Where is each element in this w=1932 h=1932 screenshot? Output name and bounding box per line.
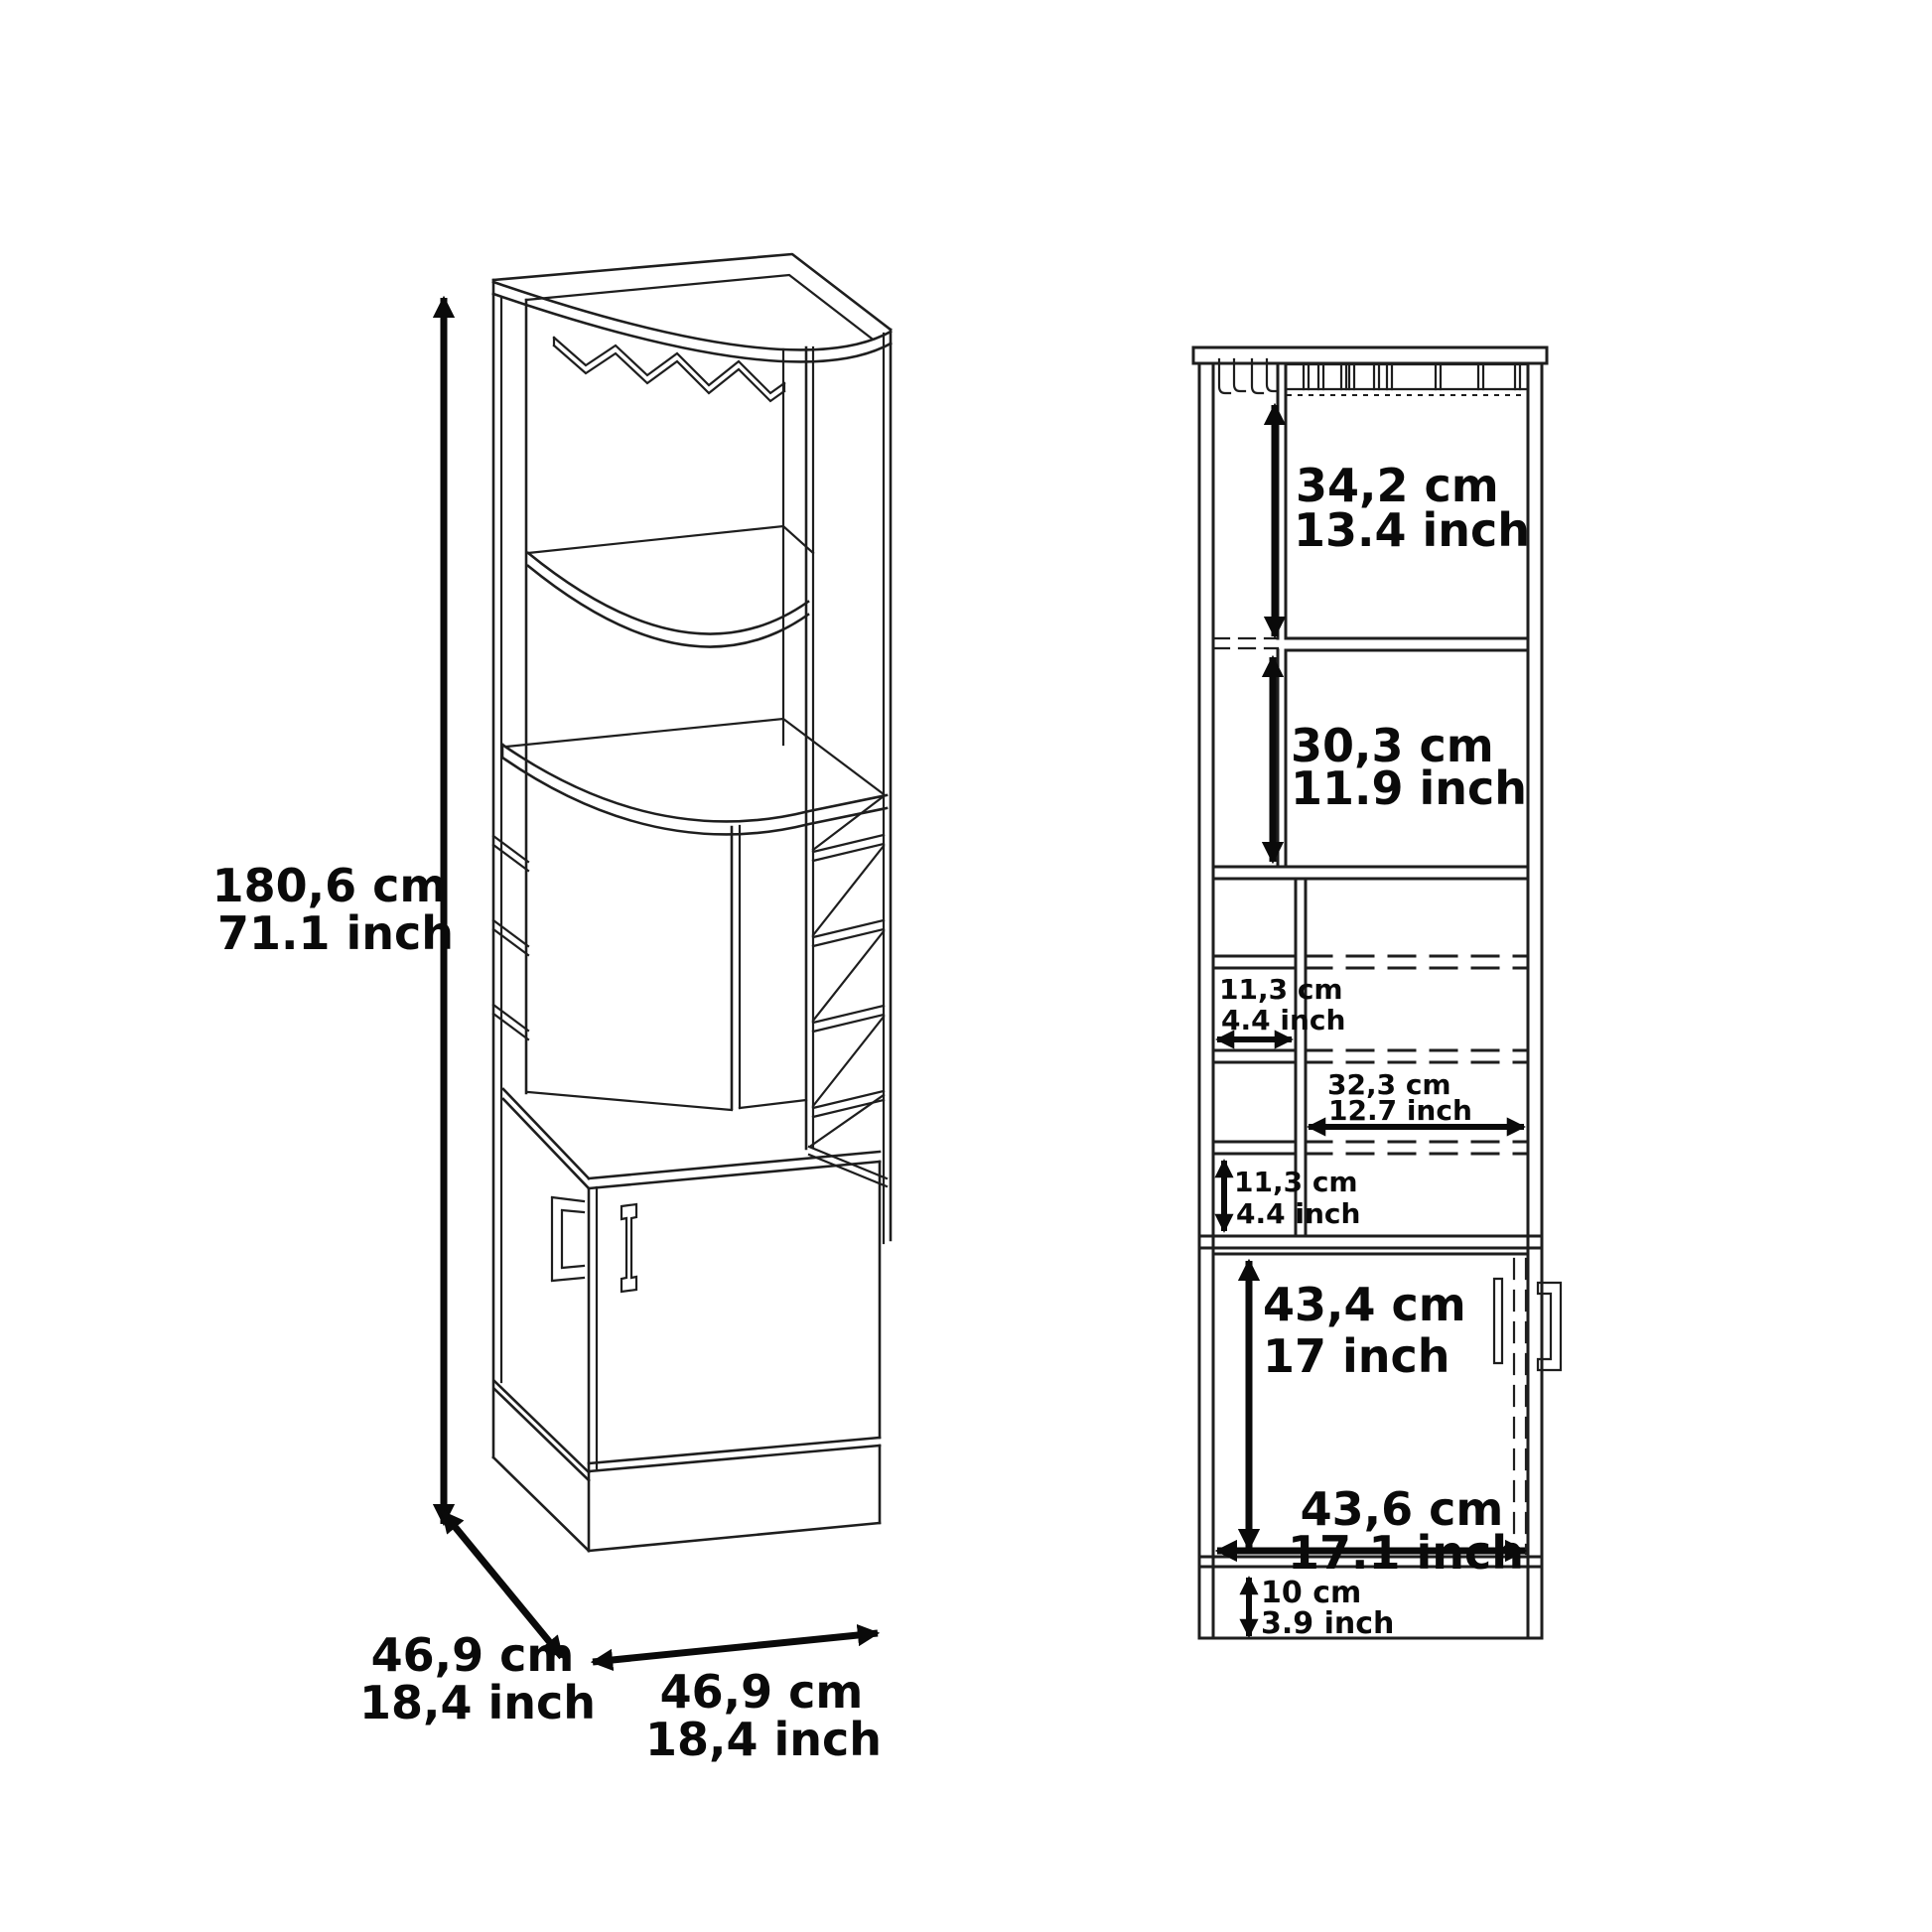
technical-drawing-page: 180,6 cm 71.1 inch 46,9 cm 18,4 inch 46,…: [0, 0, 1932, 1932]
upper-curved-shelves: [502, 526, 887, 834]
second-section-dimension: 30,3 cm 11.9 inch: [1273, 657, 1527, 862]
open-shelf-width-dimension: 32,3 cm 12.7 inch: [1309, 1068, 1524, 1127]
front-elevation-view: 34,2 cm 13.4 inch 30,3 cm 11.9 inch 11,3…: [1193, 347, 1561, 1641]
perspective-view: 180,6 cm 71.1 inch 46,9 cm 18,4 inch 46,…: [212, 254, 891, 1766]
door-height-cm-label: 43,4 cm: [1263, 1278, 1466, 1331]
open-shelf-inch-label: 12.7 inch: [1328, 1094, 1472, 1127]
depth-inch-label: 18,4 inch: [359, 1676, 596, 1729]
corner-bar-cabinet-drawing: 180,6 cm 71.1 inch 46,9 cm 18,4 inch 46,…: [0, 0, 1932, 1932]
door-handle-icon: [621, 1204, 636, 1292]
width-inch-label: 18,4 inch: [645, 1713, 882, 1766]
height-dimension: 180,6 cm 71.1 inch: [212, 298, 454, 1524]
width-dimension: 46,9 cm 18,4 inch: [593, 1633, 882, 1766]
upper-section-inch-label: 13.4 inch: [1294, 503, 1530, 557]
cabinet-width-dimension: 43,6 cm 17.1 inch: [1217, 1482, 1525, 1580]
cubby-height-cm-label: 11,3 cm: [1234, 1166, 1358, 1198]
upper-section-dimension: 34,2 cm 13.4 inch: [1275, 405, 1530, 636]
height-cm-label: 180,6 cm: [212, 859, 448, 912]
cubby-width-inch-label: 4.4 inch: [1221, 1004, 1345, 1036]
middle-divider: [528, 826, 806, 1110]
cubby-height-dimension: 11,3 cm 4.4 inch: [1224, 1161, 1360, 1231]
cubby-height-inch-label: 4.4 inch: [1236, 1197, 1360, 1230]
base-height-dimension: 10 cm 3.9 inch: [1249, 1576, 1394, 1641]
door-handles: [552, 1197, 636, 1292]
right-bottle-cubbies: [809, 796, 887, 1186]
depth-cm-label: 46,9 cm: [371, 1628, 575, 1682]
base-height-cm-label: 10 cm: [1261, 1576, 1361, 1610]
side-handle-icon: [552, 1197, 584, 1281]
cubby-width-dimension: 11,3 cm 4.4 inch: [1217, 973, 1345, 1039]
door-handle-front-icon: [1494, 1279, 1502, 1363]
depth-dimension: 46,9 cm 18,4 inch: [359, 1512, 596, 1729]
door-height-inch-label: 17 inch: [1263, 1329, 1450, 1383]
cabinet-frame: [493, 294, 891, 1457]
height-inch-label: 71.1 inch: [217, 906, 454, 960]
cubby-width-cm-label: 11,3 cm: [1219, 973, 1343, 1006]
width-dimension-arrow: [593, 1633, 878, 1662]
base-height-inch-label: 3.9 inch: [1261, 1606, 1394, 1641]
left-bottle-cubbies: [493, 836, 528, 1039]
base-plinth: [493, 1381, 880, 1551]
width-cm-label: 46,9 cm: [660, 1665, 864, 1719]
second-section-inch-label: 11.9 inch: [1291, 761, 1527, 815]
